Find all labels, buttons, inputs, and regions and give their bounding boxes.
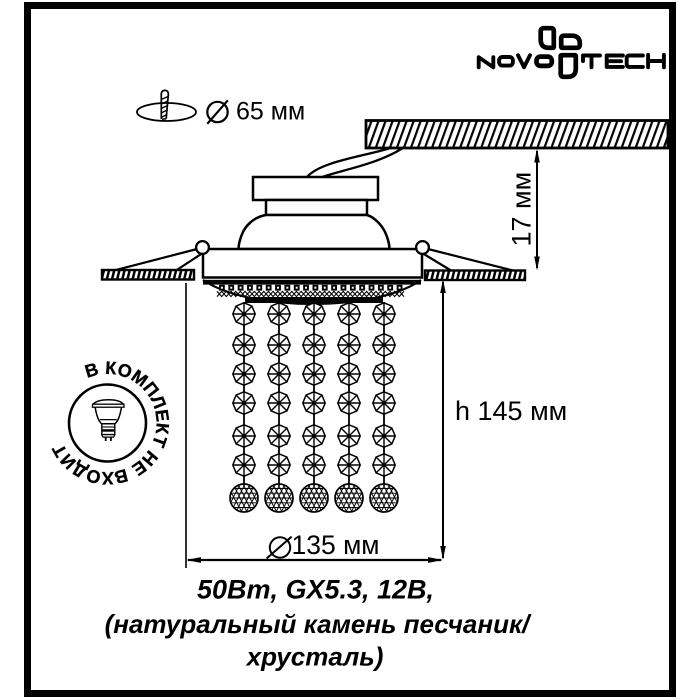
svg-text:65 мм: 65 мм bbox=[236, 98, 305, 126]
svg-text:50Вm, GX5.3, 12В,: 50Вm, GX5.3, 12В, bbox=[197, 575, 434, 605]
svg-text:(натуральный камень песчаник/: (натуральный камень песчаник/ bbox=[105, 609, 533, 639]
svg-text:135 мм: 135 мм bbox=[292, 530, 380, 560]
svg-text:хрусталь): хрусталь) bbox=[245, 642, 384, 672]
svg-text:17 мм: 17 мм bbox=[507, 172, 537, 247]
svg-text:h 145 мм: h 145 мм bbox=[455, 396, 567, 426]
